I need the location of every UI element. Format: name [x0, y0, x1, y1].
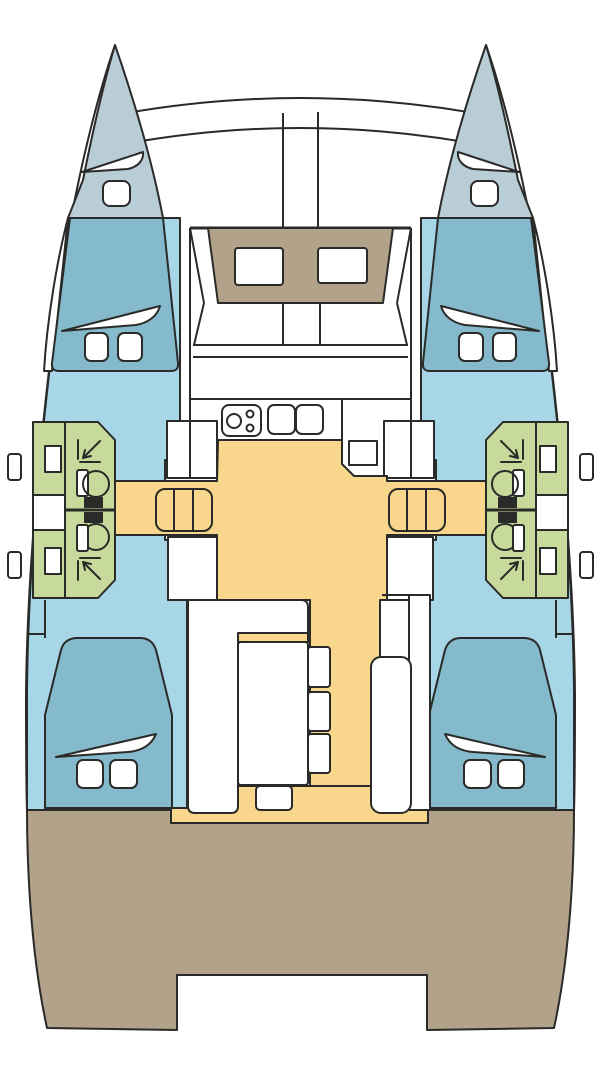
stool-1 [308, 647, 330, 687]
toilet-seat [84, 497, 103, 508]
aft-pillow-left [77, 760, 103, 788]
stool-3 [308, 734, 330, 773]
bath-column-gap [33, 495, 65, 530]
steps-box [389, 489, 445, 531]
cockpit-seat-center [256, 786, 292, 810]
salon-window-left [235, 248, 283, 285]
salon-window-right [318, 248, 367, 283]
walkway-right [409, 595, 430, 810]
floorplan-svg [0, 0, 601, 1080]
salon-table [238, 642, 308, 785]
sink-left [268, 405, 295, 434]
vanity-unit [167, 421, 217, 478]
bath-porthole-fwd [45, 446, 61, 472]
catamaran-floorplan [0, 0, 601, 1080]
forward-berth [52, 218, 178, 371]
toilet-tank [77, 525, 88, 551]
plan-root [0, 0, 601, 1080]
salon-bench-right [371, 657, 411, 813]
companionway-steps-right [389, 489, 445, 531]
aft-berth [45, 638, 172, 808]
hull-portlight-fwd [8, 454, 21, 480]
hull-portlight-aft [8, 552, 21, 578]
companionway-steps-left [156, 489, 212, 531]
aft-pillow-right [110, 760, 137, 788]
bathroom-block [33, 422, 115, 598]
steps-box [156, 489, 212, 531]
toilet-seat [84, 512, 103, 523]
forward-pillow-right [118, 333, 142, 361]
hull-cabinet [168, 537, 217, 600]
nav-seat-module [349, 441, 377, 465]
forward-pillow-left [85, 333, 108, 361]
stool-2 [308, 692, 330, 731]
bath-porthole-aft [45, 548, 61, 574]
bow-hatch [103, 181, 130, 206]
sink-right [296, 405, 323, 434]
